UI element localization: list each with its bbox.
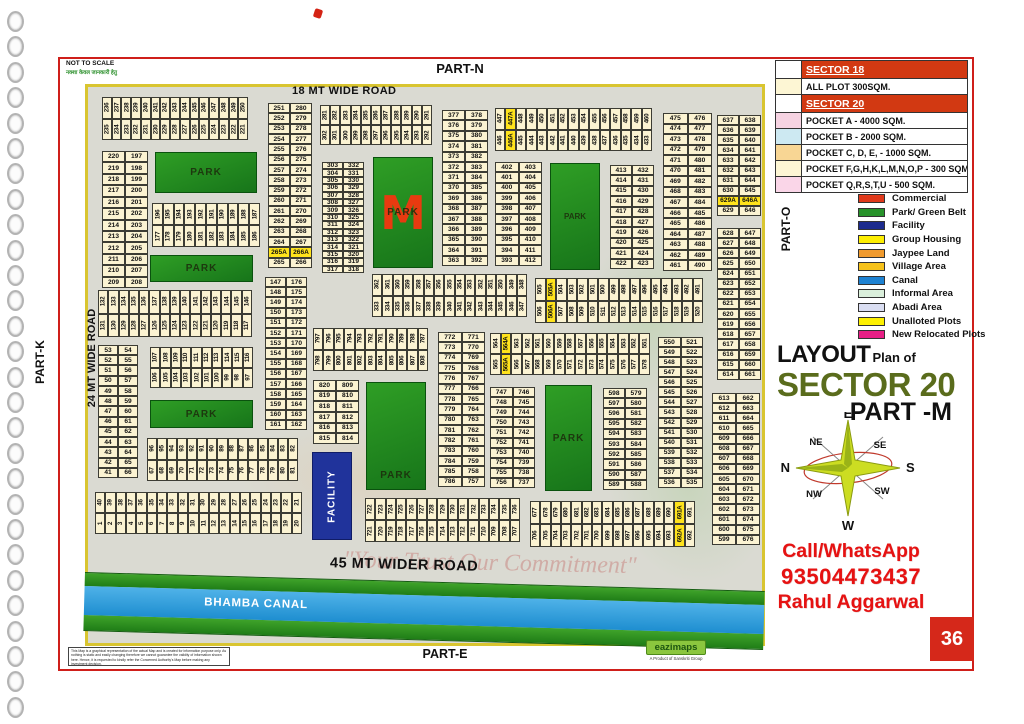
plot-137: 137 xyxy=(149,290,159,314)
plot-30: 30 xyxy=(199,492,209,513)
plot-515: 515 xyxy=(640,301,651,324)
plot-522: 522 xyxy=(681,347,704,357)
plot-362: 362 xyxy=(372,274,382,296)
plot-637: 637 xyxy=(717,115,739,125)
plot-320: 320 xyxy=(343,251,364,258)
plot-169: 169 xyxy=(286,348,307,358)
plot-656: 656 xyxy=(739,319,761,329)
plot-744: 744 xyxy=(513,407,536,417)
plot-351: 351 xyxy=(486,274,496,296)
plot-268: 268 xyxy=(290,227,312,237)
plot-395: 395 xyxy=(495,235,519,245)
binding-hole xyxy=(7,113,24,134)
plot-506A: 506A xyxy=(546,301,557,324)
plot-91: 91 xyxy=(197,438,207,460)
plot-626: 626 xyxy=(717,248,739,258)
plot-814: 814 xyxy=(336,433,359,444)
plot-72: 72 xyxy=(197,460,207,482)
plot-472: 472 xyxy=(663,145,688,156)
plot-742: 742 xyxy=(513,427,536,437)
plot-310: 310 xyxy=(322,214,343,221)
plot-308: 308 xyxy=(322,199,343,206)
plot-34: 34 xyxy=(157,492,167,513)
plot-759: 759 xyxy=(462,456,486,466)
plot-316: 316 xyxy=(322,258,343,265)
plot-727: 727 xyxy=(417,498,427,520)
plot-620: 620 xyxy=(717,309,739,319)
strip-281-302: 2812822832842852862872882892902913023013… xyxy=(320,105,432,145)
plot-75: 75 xyxy=(228,460,238,482)
plot-133: 133 xyxy=(108,290,118,314)
plot-58: 58 xyxy=(118,386,138,396)
plot-423: 423 xyxy=(632,259,654,269)
plot-443: 443 xyxy=(537,130,547,152)
plot-768: 768 xyxy=(462,363,486,373)
sector-item-row: POCKET A - 4000 SQM. xyxy=(776,113,967,129)
plot-148: 148 xyxy=(265,287,286,297)
park-label: PARK xyxy=(190,167,222,178)
plot-726: 726 xyxy=(406,498,416,520)
plot-39: 39 xyxy=(105,492,115,513)
legend-item: Unalloted Plots xyxy=(858,314,970,328)
plot-50: 50 xyxy=(98,376,118,386)
plot-526: 526 xyxy=(681,387,704,397)
plot-456: 456 xyxy=(600,108,610,130)
plot-315: 315 xyxy=(322,251,343,258)
plot-114: 114 xyxy=(222,347,232,368)
plot-204: 204 xyxy=(125,231,148,242)
plot-200: 200 xyxy=(125,185,148,196)
plot-748: 748 xyxy=(490,397,513,407)
plot-670: 670 xyxy=(736,474,760,484)
plot-813: 813 xyxy=(336,423,359,434)
plot-474: 474 xyxy=(663,124,688,135)
plot-54: 54 xyxy=(118,345,138,355)
plot-407: 407 xyxy=(519,204,543,214)
plot-724: 724 xyxy=(386,498,396,520)
plot-534: 534 xyxy=(681,468,704,478)
plot-170: 170 xyxy=(286,338,307,348)
plot-79: 79 xyxy=(268,460,278,482)
plot-16: 16 xyxy=(250,513,260,534)
plot-611: 611 xyxy=(712,413,736,423)
plot-207: 207 xyxy=(125,265,148,276)
plot-608: 608 xyxy=(712,444,736,454)
plot-525: 525 xyxy=(681,377,704,387)
plot-564: 564 xyxy=(490,333,501,354)
plot-686: 686 xyxy=(623,501,633,524)
plot-444: 444 xyxy=(526,130,536,152)
plot-616: 616 xyxy=(717,350,739,360)
plot-167: 167 xyxy=(286,369,307,379)
plot-714: 714 xyxy=(437,520,447,542)
plot-36: 36 xyxy=(136,492,146,513)
plot-791: 791 xyxy=(376,328,386,350)
plot-669: 669 xyxy=(736,464,760,474)
plot-459: 459 xyxy=(631,108,641,130)
legend-swatch xyxy=(858,194,885,203)
plot-136: 136 xyxy=(139,290,149,314)
strip-677-706: 6776786796806816826836846856866876886896… xyxy=(530,501,695,547)
plot-709: 709 xyxy=(489,520,499,542)
plot-435: 435 xyxy=(621,130,631,152)
plot-765: 765 xyxy=(462,394,486,404)
plot-286: 286 xyxy=(371,105,381,125)
sector-header-row: SECTOR 20 xyxy=(776,95,967,113)
plot-805: 805 xyxy=(386,350,396,372)
plot-99: 99 xyxy=(222,368,232,389)
plot-441: 441 xyxy=(558,130,568,152)
plot-341: 341 xyxy=(455,296,465,318)
strip-551-578: 564564A563562561560559558557556555554553… xyxy=(490,333,650,375)
sector-item-row: POCKET F,G,H,K,L,M,N,O,P - 300 SQM. xyxy=(776,161,967,177)
plot-250: 250 xyxy=(238,97,248,119)
plot-51: 51 xyxy=(98,365,118,375)
plot-161: 161 xyxy=(265,420,286,430)
plot-531: 531 xyxy=(681,438,704,448)
plot-189: 189 xyxy=(228,203,239,225)
plot-6: 6 xyxy=(147,513,157,534)
plot-792: 792 xyxy=(365,328,375,350)
plot-366: 366 xyxy=(442,224,465,234)
plot-281: 281 xyxy=(320,105,330,125)
plot-627: 627 xyxy=(717,238,739,248)
plot-716: 716 xyxy=(417,520,427,542)
sector-label: SECTOR 18 xyxy=(802,61,967,78)
plot-85: 85 xyxy=(258,438,268,460)
legend-label: Commercial xyxy=(892,193,946,204)
plot-549: 549 xyxy=(658,347,681,357)
park-5: PARK xyxy=(366,382,426,490)
park-label: PARK xyxy=(387,207,419,218)
plot-738: 738 xyxy=(513,468,536,478)
plot-461: 461 xyxy=(663,260,688,271)
plot-217: 217 xyxy=(102,185,125,196)
legend-item: Jaypee Land xyxy=(858,246,970,260)
plot-510: 510 xyxy=(588,301,599,324)
plot-540: 540 xyxy=(658,438,681,448)
plot-517: 517 xyxy=(661,301,672,324)
plot-253: 253 xyxy=(268,124,290,134)
plot-121: 121 xyxy=(201,314,211,338)
plot-556: 556 xyxy=(586,333,597,354)
plot-548: 548 xyxy=(658,357,681,367)
plot-55: 55 xyxy=(118,355,138,365)
plot-778: 778 xyxy=(438,394,462,404)
legend-swatch xyxy=(858,289,885,298)
plot-105: 105 xyxy=(160,368,170,389)
plot-47: 47 xyxy=(98,406,118,416)
plot-403: 403 xyxy=(519,162,543,172)
plot-426: 426 xyxy=(632,227,654,237)
plot-346: 346 xyxy=(506,296,516,318)
plot-535: 535 xyxy=(681,478,704,488)
plot-392: 392 xyxy=(465,256,488,266)
plot-500: 500 xyxy=(598,278,609,301)
plot-401: 401 xyxy=(495,172,519,182)
plot-70: 70 xyxy=(177,460,187,482)
plot-430: 430 xyxy=(632,186,654,196)
plot-107: 107 xyxy=(150,347,160,368)
plot-572: 572 xyxy=(575,354,586,375)
plot-529: 529 xyxy=(681,418,704,428)
sector-label: POCKET Q,R,S,T,U - 500 SQM. xyxy=(802,177,967,192)
plot-720: 720 xyxy=(375,520,385,542)
plot-205: 205 xyxy=(125,242,148,253)
plot-71: 71 xyxy=(187,460,197,482)
plot-306: 306 xyxy=(322,184,343,191)
plot-270: 270 xyxy=(290,206,312,216)
plot-361: 361 xyxy=(382,274,392,296)
plot-336: 336 xyxy=(403,296,413,318)
plot-705: 705 xyxy=(540,524,550,547)
plot-249: 249 xyxy=(229,97,239,119)
plot-155: 155 xyxy=(265,359,286,369)
sector-item-row: POCKET Q,R,S,T,U - 500 SQM. xyxy=(776,177,967,192)
plot-129: 129 xyxy=(119,314,129,338)
plot-57: 57 xyxy=(118,376,138,386)
legend-item: Commercial xyxy=(858,192,970,206)
plot-733: 733 xyxy=(479,498,489,520)
plot-590: 590 xyxy=(603,470,625,480)
plot-26: 26 xyxy=(240,492,250,513)
plot-756: 756 xyxy=(490,478,513,488)
binding-hole xyxy=(7,443,24,464)
plot-154: 154 xyxy=(265,348,286,358)
plot-798: 798 xyxy=(313,350,323,372)
plot-416: 416 xyxy=(610,196,632,206)
plot-267: 267 xyxy=(290,237,312,247)
plot-329: 329 xyxy=(343,184,364,191)
park-label: PARK xyxy=(186,409,218,420)
plot-187: 187 xyxy=(249,203,260,225)
plot-795: 795 xyxy=(334,328,344,350)
plot-229: 229 xyxy=(160,119,170,141)
legend-swatch xyxy=(858,317,885,326)
title-layout: LAYOUT xyxy=(777,341,870,368)
plot-417: 417 xyxy=(610,207,632,217)
plot-145: 145 xyxy=(231,290,241,314)
plot-584: 584 xyxy=(625,439,647,449)
plot-374: 374 xyxy=(442,141,465,151)
plot-15: 15 xyxy=(240,513,250,534)
plot-216: 216 xyxy=(102,197,125,208)
plot-636: 636 xyxy=(717,125,739,135)
plot-94: 94 xyxy=(167,438,177,460)
plot-630: 630 xyxy=(717,186,739,196)
plot-810: 810 xyxy=(336,391,359,402)
plot-741: 741 xyxy=(513,438,536,448)
plot-276: 276 xyxy=(290,144,312,154)
plot-485: 485 xyxy=(688,208,713,219)
plot-747: 747 xyxy=(490,387,513,397)
sector-header-row: SECTOR 18 xyxy=(776,61,967,79)
plot-150: 150 xyxy=(265,308,286,318)
plot-634: 634 xyxy=(717,145,739,155)
plot-612: 612 xyxy=(712,403,736,413)
binding-hole xyxy=(7,697,24,718)
plot-513: 513 xyxy=(619,301,630,324)
plot-448: 448 xyxy=(516,108,526,130)
plot-257: 257 xyxy=(268,165,290,175)
plot-284: 284 xyxy=(351,105,361,125)
plot-93: 93 xyxy=(177,438,187,460)
plot-617: 617 xyxy=(717,339,739,349)
plot-153: 153 xyxy=(265,338,286,348)
plot-42: 42 xyxy=(98,458,118,468)
plot-328: 328 xyxy=(343,192,364,199)
plot-787: 787 xyxy=(418,328,428,350)
plot-440: 440 xyxy=(568,130,578,152)
plot-240: 240 xyxy=(141,97,151,119)
plot-243: 243 xyxy=(170,97,180,119)
plot-69: 69 xyxy=(167,460,177,482)
plot-452: 452 xyxy=(558,108,568,130)
plot-797: 797 xyxy=(313,328,323,350)
plot-338: 338 xyxy=(424,296,434,318)
plot-17: 17 xyxy=(261,513,271,534)
plot-87: 87 xyxy=(238,438,248,460)
binding-hole xyxy=(7,646,24,667)
plot-185: 185 xyxy=(238,225,249,247)
plot-576: 576 xyxy=(618,354,629,375)
plot-632: 632 xyxy=(717,166,739,176)
plot-723: 723 xyxy=(375,498,385,520)
plot-110: 110 xyxy=(181,347,191,368)
plot-719: 719 xyxy=(386,520,396,542)
plot-83: 83 xyxy=(278,438,288,460)
plot-691A: 691A xyxy=(674,501,684,524)
plot-467: 467 xyxy=(663,197,688,208)
plot-100: 100 xyxy=(212,368,222,389)
plot-312: 312 xyxy=(322,229,343,236)
plot-629A: 629A xyxy=(717,196,739,206)
plot-309: 309 xyxy=(322,206,343,213)
plot-123: 123 xyxy=(180,314,190,338)
plot-113: 113 xyxy=(212,347,222,368)
col-737-756: 7477467487457497447507437517427527417537… xyxy=(490,387,535,488)
plot-88: 88 xyxy=(228,438,238,460)
plot-299: 299 xyxy=(351,125,361,145)
contact-phone: 93504473437 xyxy=(770,564,932,591)
sector-label: POCKET C, D, E, - 1000 SQM. xyxy=(802,145,967,160)
legend-swatch xyxy=(858,330,885,339)
legend-label: Unalloted Plots xyxy=(892,316,961,327)
hindi-note: नक्शा केवल जानकारी हेतु xyxy=(66,68,117,76)
strip-707-736: 7227237247257267277287297307317327337347… xyxy=(365,498,520,542)
plot-182: 182 xyxy=(206,225,217,247)
compass-rose: E S W N NE SE SW NW xyxy=(778,412,918,532)
binding-hole xyxy=(7,468,24,489)
plot-186: 186 xyxy=(249,225,260,247)
col-757-786: 7727717737707747697757687767677777667787… xyxy=(438,332,485,487)
plot-288: 288 xyxy=(391,105,401,125)
plot-278: 278 xyxy=(290,124,312,134)
plot-126: 126 xyxy=(149,314,159,338)
plot-530: 530 xyxy=(681,428,704,438)
plot-587: 587 xyxy=(625,470,647,480)
plot-790: 790 xyxy=(386,328,396,350)
plot-682: 682 xyxy=(582,501,592,524)
plot-92: 92 xyxy=(187,438,197,460)
plot-542: 542 xyxy=(658,418,681,428)
plot-685: 685 xyxy=(613,501,623,524)
plot-591: 591 xyxy=(603,459,625,469)
plot-764: 764 xyxy=(462,404,486,414)
brand-subtitle: A Product of Sanskriti Group xyxy=(646,656,706,661)
plot-488: 488 xyxy=(688,239,713,250)
plot-504: 504 xyxy=(556,278,567,301)
plot-385: 385 xyxy=(465,183,488,193)
plot-127: 127 xyxy=(139,314,149,338)
plot-4: 4 xyxy=(126,513,136,534)
plot-755: 755 xyxy=(490,468,513,478)
plot-434: 434 xyxy=(631,130,641,152)
plot-796: 796 xyxy=(323,328,333,350)
plot-179: 179 xyxy=(174,225,185,247)
plot-538: 538 xyxy=(658,458,681,468)
plot-32: 32 xyxy=(178,492,188,513)
plot-128: 128 xyxy=(129,314,139,338)
plot-370: 370 xyxy=(442,183,465,193)
plot-357: 357 xyxy=(424,274,434,296)
plot-193: 193 xyxy=(184,203,195,225)
plot-345: 345 xyxy=(496,296,506,318)
plot-437: 437 xyxy=(600,130,610,152)
plot-489: 489 xyxy=(688,250,713,261)
plot-241: 241 xyxy=(151,97,161,119)
legend-item: Facility xyxy=(858,219,970,233)
plot-411: 411 xyxy=(519,245,543,255)
plot-414: 414 xyxy=(610,175,632,185)
plot-347: 347 xyxy=(517,296,527,318)
plot-322: 322 xyxy=(343,236,364,243)
plot-446: 446 xyxy=(495,130,505,152)
plot-44: 44 xyxy=(98,437,118,447)
plot-501: 501 xyxy=(588,278,599,301)
plot-698: 698 xyxy=(613,524,623,547)
plot-615: 615 xyxy=(717,360,739,370)
plot-545: 545 xyxy=(658,387,681,397)
plot-509: 509 xyxy=(577,301,588,324)
plot-595: 595 xyxy=(603,419,625,429)
plot-695: 695 xyxy=(643,524,653,547)
title-sector: SECTOR 20 xyxy=(777,369,962,400)
plot-493: 493 xyxy=(672,278,683,301)
plot-447: 447 xyxy=(495,108,505,130)
plot-820: 820 xyxy=(313,380,336,391)
park-label: PARK xyxy=(186,263,218,274)
plot-721: 721 xyxy=(365,520,375,542)
plot-372: 372 xyxy=(442,162,465,172)
plot-142: 142 xyxy=(201,290,211,314)
plot-410: 410 xyxy=(519,235,543,245)
plot-745: 745 xyxy=(513,397,536,407)
plot-692: 692 xyxy=(685,524,695,547)
plot-165: 165 xyxy=(286,389,307,399)
compass-se: SE xyxy=(874,440,887,451)
plot-265A: 265A xyxy=(268,247,290,257)
plot-564A: 564A xyxy=(501,333,512,354)
plot-294: 294 xyxy=(401,125,411,145)
plot-314: 314 xyxy=(322,243,343,250)
plot-41: 41 xyxy=(98,468,118,478)
plot-507: 507 xyxy=(556,301,567,324)
plot-367: 367 xyxy=(442,214,465,224)
plot-480: 480 xyxy=(688,155,713,166)
plot-604: 604 xyxy=(712,484,736,494)
compass-sw: SW xyxy=(874,486,889,497)
